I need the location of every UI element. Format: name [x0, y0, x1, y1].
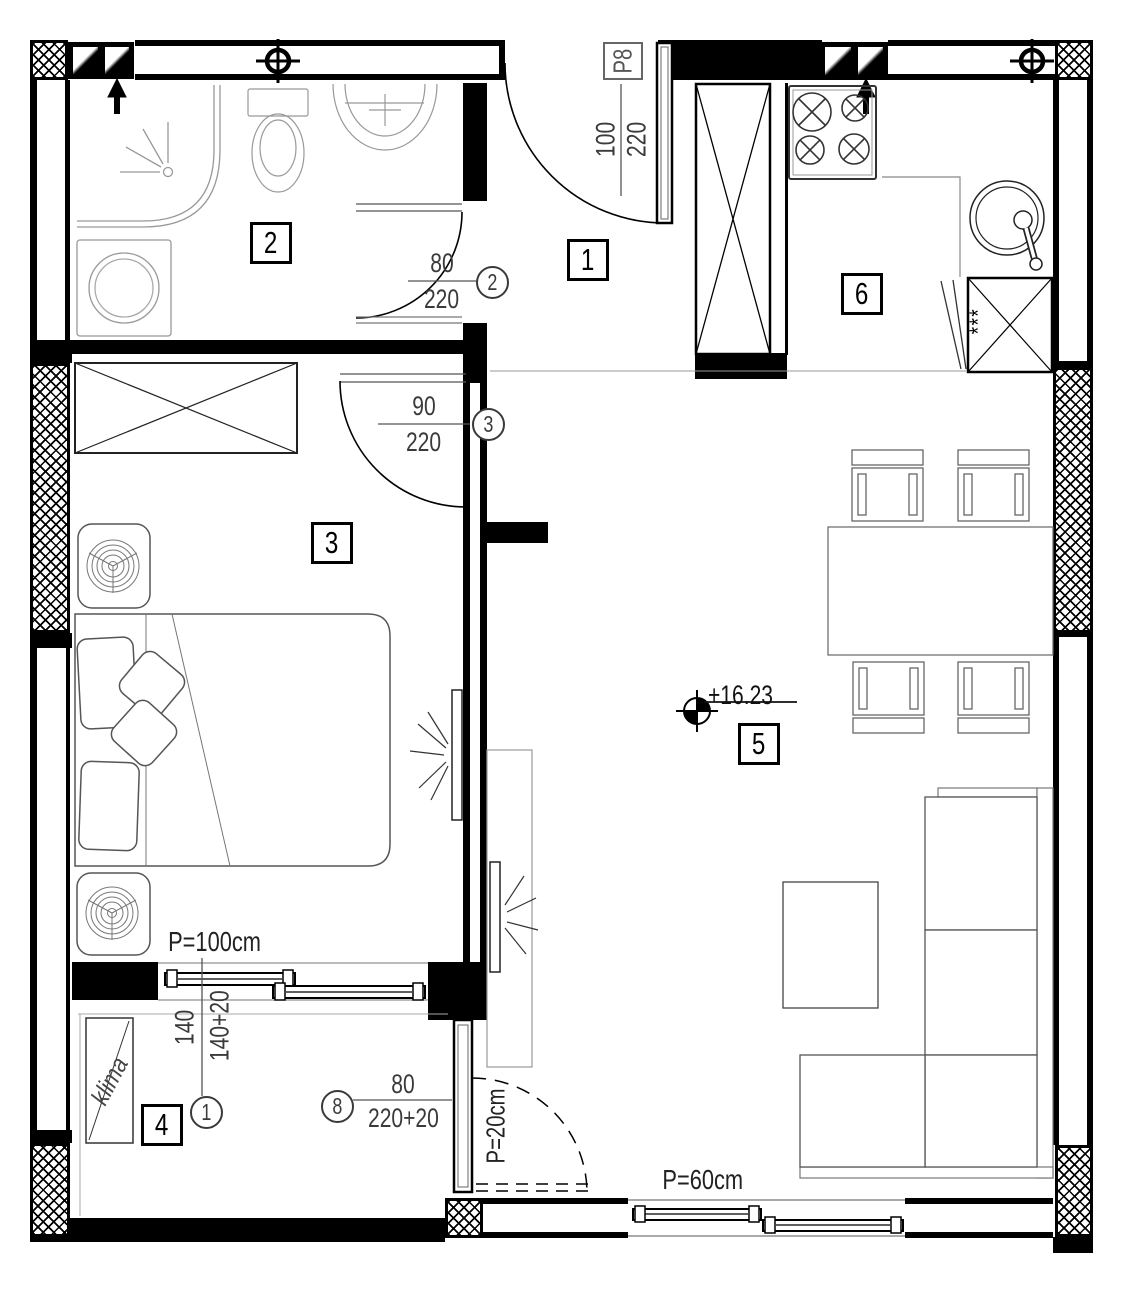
entrance-door-tag-text: P8: [605, 48, 641, 75]
window-bedroom: [158, 963, 428, 1000]
entrance-door-tag: P8: [603, 42, 643, 80]
shower-cabin: [77, 85, 220, 227]
double-bed: [75, 614, 390, 866]
freezer-stars: ***: [966, 298, 992, 343]
survey-mark-icon: [256, 39, 300, 83]
dining-table: [828, 527, 1053, 655]
tv-bedroom: [410, 690, 462, 820]
door3-dim-height: 220: [378, 428, 470, 456]
coffee-table: [783, 882, 878, 1008]
hall-wardrobe: [696, 84, 770, 354]
parapet-bedroom-window-label: P=100cm: [155, 927, 275, 956]
nightstand-plant-top: [78, 524, 150, 608]
room-label-6: 6: [841, 273, 883, 315]
floor-plan-canvas: 1 2 3 4 5 6 P8 100 220 80 220 2 90 220 3…: [0, 0, 1135, 1294]
survey-mark-icon: [1010, 39, 1054, 83]
door8-dim-height: 220+20: [355, 1104, 452, 1132]
parapet-living-window-label: P=60cm: [648, 1165, 758, 1194]
window1-dim-height: 140+20: [205, 975, 235, 1078]
entrance-dim-height: 220: [623, 95, 651, 182]
door3-ref-circle: 3: [472, 408, 505, 441]
door8-dim-width: 80: [355, 1070, 452, 1098]
toilet: [248, 89, 308, 192]
bedroom-wardrobe: [75, 363, 297, 453]
dish-drainer: [941, 280, 966, 369]
window1-ref-circle: 1: [190, 1096, 223, 1129]
parapet-balcony-door-label: P=20cm: [480, 1082, 512, 1169]
stove: [789, 86, 876, 179]
room-label-2: 2: [250, 222, 292, 264]
entrance-dim-width: 100: [592, 95, 620, 182]
drawing-layer: [0, 0, 1135, 1294]
kitchen-sink: [970, 181, 1044, 270]
window1-dim-width: 140: [170, 997, 200, 1058]
level-mark-text: +16.23: [708, 681, 800, 709]
washing-machine: [77, 240, 171, 336]
kitchen-counter-edge: [882, 177, 960, 277]
bathroom-sink: [333, 84, 437, 150]
door8-ref-circle: 8: [321, 1090, 354, 1123]
tv-cabinet-living: [487, 750, 538, 1067]
window-living: [628, 1200, 905, 1236]
room-label-5: 5: [738, 723, 780, 765]
door2-dim-width: 80: [408, 249, 476, 277]
door2-ref-circle: 2: [476, 266, 509, 299]
door2-dim-height: 220: [408, 285, 476, 313]
room-label-1: 1: [567, 239, 609, 281]
door3-dim-width: 90: [378, 392, 470, 420]
nightstand-plant-bottom: [77, 873, 150, 955]
room-label-4: 4: [141, 1104, 183, 1146]
room-label-3: 3: [311, 522, 353, 564]
